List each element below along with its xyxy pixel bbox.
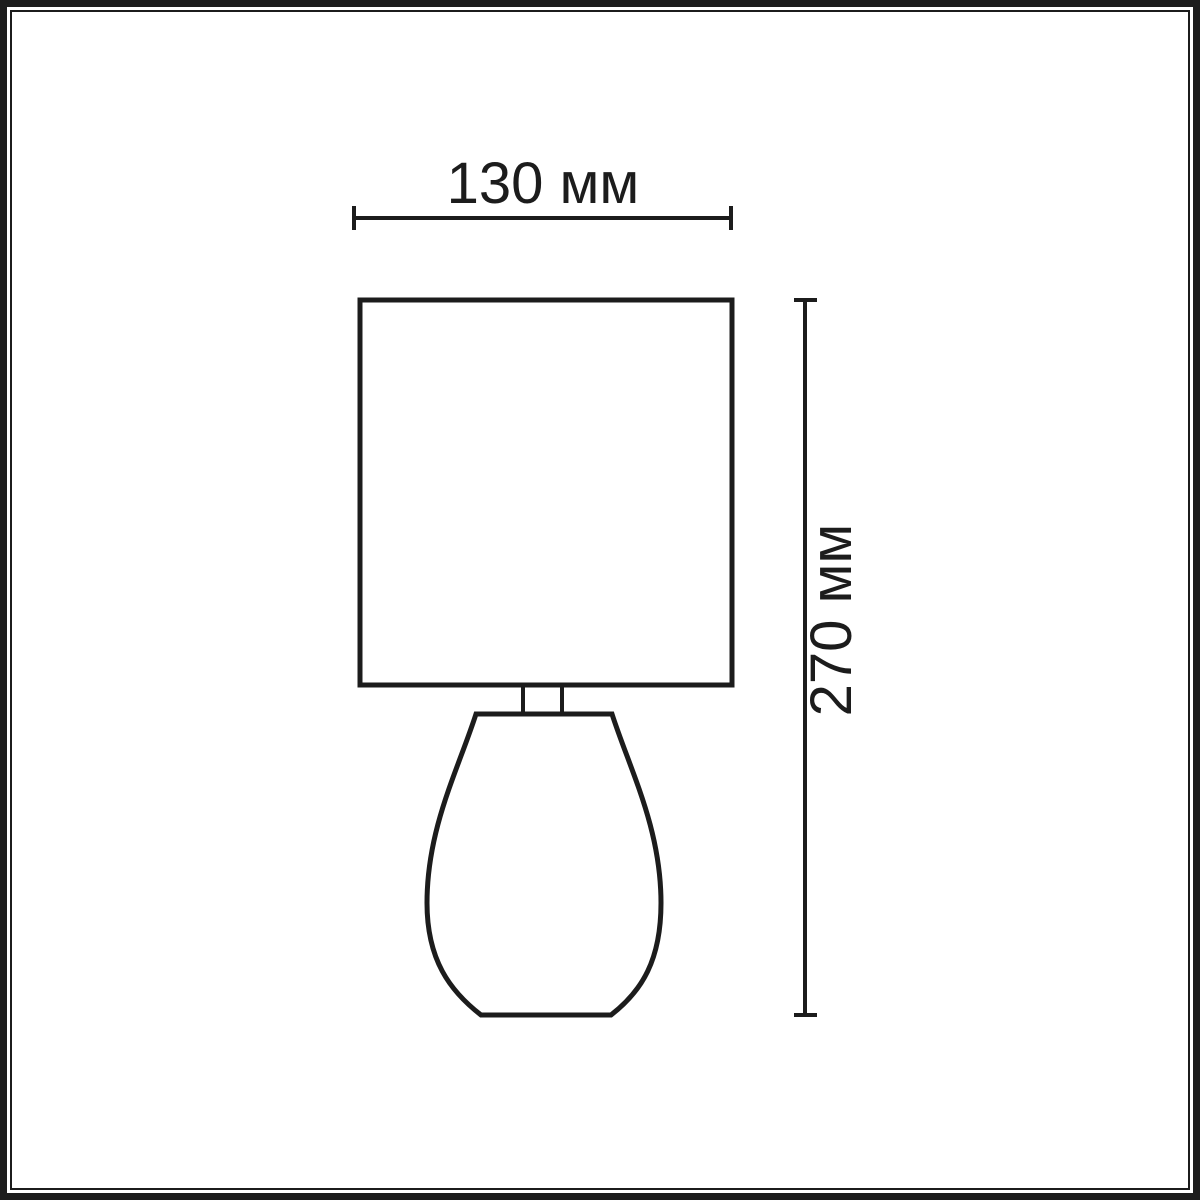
- lampshade-outline: [360, 300, 732, 685]
- height-dimension-label: 270 мм: [803, 420, 861, 820]
- drawing-canvas: 130 мм 270 мм: [0, 0, 1200, 1200]
- lamp-base-outline: [427, 714, 661, 1015]
- width-dimension-label: 130 мм: [343, 155, 743, 213]
- lamp-neck-outline: [523, 685, 562, 714]
